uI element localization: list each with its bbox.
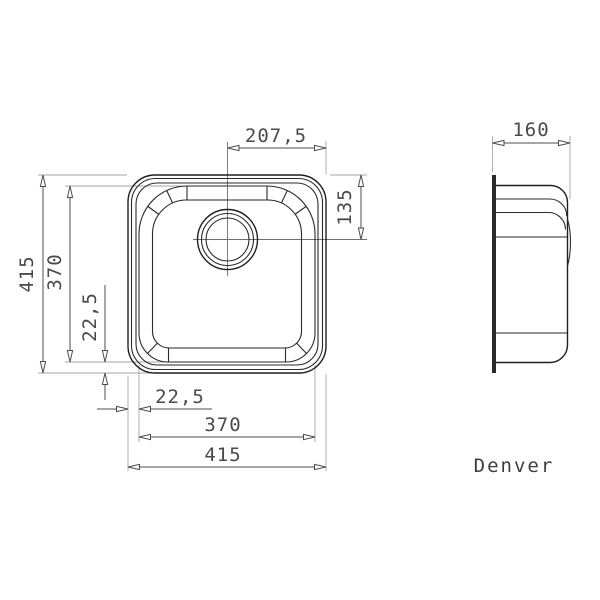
side-rim-flange [492, 175, 496, 373]
extension-lines [38, 136, 570, 471]
dimension-labels: 207,5 160 415 370 22,5 135 22,5 370 415 … [16, 119, 554, 477]
dim-depth-label: 160 [512, 119, 549, 141]
dim-center-to-right-label: 207,5 [245, 125, 307, 147]
dim-inner-height-label: 370 [44, 253, 66, 290]
dim-left-inset-label: 22,5 [155, 386, 205, 408]
dim-inner-width-label: 370 [204, 414, 241, 436]
dim-overall-width-label: 415 [204, 444, 241, 466]
dim-drain-from-top-label: 135 [334, 188, 356, 225]
plan-view [128, 175, 326, 373]
sink-technical-drawing: 207,5 160 415 370 22,5 135 22,5 370 415 … [0, 0, 600, 600]
technical-drawing-sheet: 207,5 160 415 370 22,5 135 22,5 370 415 … [0, 0, 600, 600]
dimension-lines [40, 140, 570, 469]
dim-bottom-inset-label: 22,5 [79, 292, 101, 342]
model-name-label: Denver [474, 455, 555, 477]
plan-bowl-outline [139, 186, 315, 362]
side-view [492, 175, 571, 373]
dim-overall-height-label: 415 [16, 255, 38, 292]
